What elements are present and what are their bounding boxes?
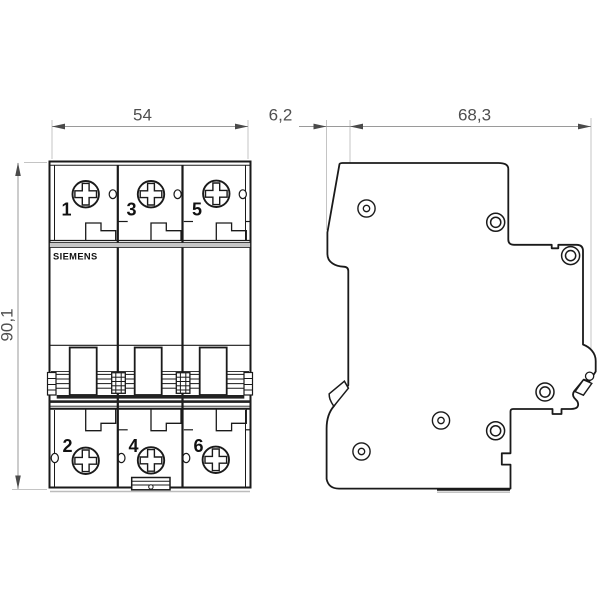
dimension-label-side-depth: 68,3 [458,106,491,125]
arrow-left [52,124,65,130]
cable-notch [174,190,181,199]
phillips-screw-terminal-3 [138,181,164,207]
rivet-circle [358,200,375,217]
technical-drawing-canvas: 54 90,1 6,2 68,3 [0,0,600,600]
rivet-circle [432,412,449,429]
toggle-handle [70,348,97,396]
front-view: SIEMENS [48,162,253,492]
cable-notch [183,453,190,462]
mcb-dimension-drawing: 54 90,1 6,2 68,3 [0,0,600,600]
rivet-ring [562,247,580,265]
toggle-handle [135,348,162,396]
dimension-height-90-1: 90,1 [0,163,47,490]
dark-bar [57,395,245,399]
breaker-body-outline [50,162,251,488]
dark-bar [50,400,251,403]
rivet-ring [487,213,505,231]
arrow-right [578,124,591,130]
dimension-label-width: 54 [133,106,152,125]
rivet-ring [487,422,505,440]
side-view [327,163,596,492]
cable-notch [51,453,58,462]
cable-notch [109,190,116,199]
dimension-width-54: 54 [52,106,248,160]
rivet-circle [353,443,370,460]
din-hook-pivot [586,372,594,380]
terminal-number: 2 [62,436,72,456]
arrow-up [15,163,21,177]
terminal-number: 1 [61,200,71,220]
din-clip-front [132,478,170,490]
phillips-screw-terminal-5 [203,181,229,207]
dimension-label-height: 90,1 [0,308,17,341]
handle-tie-pin [112,373,126,394]
brand-label: SIEMENS [53,251,98,261]
arrow-down [15,476,21,490]
terminal-number: 6 [193,436,203,456]
dimension-label-front-depth: 6,2 [269,106,293,125]
edge-comb [48,373,57,396]
arrow-right [314,124,327,130]
cable-notch [239,190,246,199]
phillips-screw-terminal-2 [73,448,99,474]
terminal-number: 3 [126,200,136,220]
phillips-screw-terminal-6 [203,447,229,473]
arrow-left [350,124,363,130]
edge-comb [244,373,253,396]
terminal-number: 5 [192,200,202,220]
phillips-screw-terminal-1 [73,181,99,207]
separator-band [50,243,251,248]
terminal-number: 4 [128,436,138,456]
rivet-ring [536,383,554,401]
toggle-handle [200,348,227,396]
phillips-screw-terminal-4 [138,447,164,473]
arrow-right [235,124,248,130]
handle-tie-pin [176,373,190,394]
